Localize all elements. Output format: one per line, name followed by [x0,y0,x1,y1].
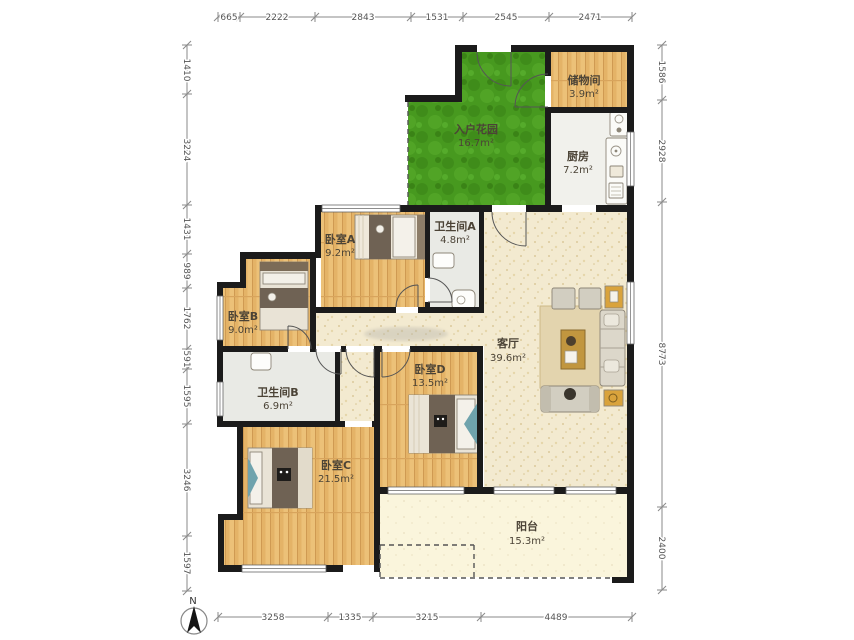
room-area-bedroom-b: 9.0m² [228,325,258,336]
armchair [552,288,575,309]
bed-d [409,395,478,453]
floor-plan: 665 2222 2843 1531 2545 2471 1410 3224 1… [0,0,854,640]
dim-right-3: 2400 [656,537,666,560]
window [627,282,634,344]
room-area-bath-a: 4.8m² [440,235,470,246]
north-arrow-icon [187,606,201,633]
bedroom-c-floor-left [224,518,243,565]
dim-bottom-0: 3258 [262,613,285,623]
balcony-floor [380,494,627,577]
dim-bottom-1: 1335 [339,613,362,623]
dim-bottom-3: 4489 [545,613,568,623]
room-area-bath-b: 6.9m² [263,401,293,412]
bed-c [248,448,312,508]
bed-b [260,262,308,330]
room-label-living: 客厅 [496,336,519,350]
room-area-balcony: 15.3m² [509,536,545,547]
window [217,296,223,340]
dim-left-5: 591 [181,350,191,367]
window [494,487,554,494]
room-area-living: 39.6m² [490,353,526,364]
floor-plan-page: 665 2222 2843 1531 2545 2471 1410 3224 1… [0,0,854,640]
window [217,382,223,416]
bath-b-fixtures [251,353,271,370]
room-area-bedroom-a: 9.2m² [325,248,355,259]
room-area-storage: 3.9m² [569,89,599,100]
dim-left-6: 1595 [181,385,191,408]
side-table-bottom [604,390,623,406]
dim-top-0: 665 [220,13,237,23]
dimension-chain-top: 665 2222 2843 1531 2545 2471 [214,12,636,23]
room-label-garden: 入户花园 [454,122,498,136]
dim-left-2: 1431 [181,218,191,241]
dim-right-2: 8773 [656,343,666,366]
dim-left-0: 1410 [181,59,191,82]
dim-left-1: 3224 [181,139,191,162]
room-label-balcony: 阳台 [516,519,538,533]
armchair [579,288,601,309]
living-room-set [540,286,625,412]
room-area-bedroom-c: 21.5m² [318,474,354,485]
window [627,132,634,186]
dim-right-0: 1586 [656,61,666,84]
dimension-chain-left: 1410 3224 1431 989 1762 591 1595 3246 15… [181,41,192,595]
dim-right-1: 2928 [656,140,666,163]
dim-top-5: 2471 [579,13,602,23]
room-label-bedroom-a: 卧室A [325,232,356,246]
dim-top-1: 2222 [266,13,289,23]
bed-a [355,215,425,259]
dim-left-7: 3246 [181,469,191,492]
room-label-kitchen: 厨房 [567,149,589,163]
dim-top-3: 1531 [426,13,449,23]
dim-left-8: 1597 [181,552,191,575]
room-label-bedroom-d: 卧室D [414,362,445,376]
window [388,487,464,494]
dim-left-3: 989 [181,262,191,279]
dim-top-4: 2545 [495,13,518,23]
corridor-floor [340,352,374,421]
room-area-kitchen: 7.2m² [563,165,593,176]
dim-bottom-2: 3215 [416,613,439,623]
north-compass: N [181,596,207,634]
window [566,487,616,494]
watermark [364,327,448,341]
room-label-bedroom-c: 卧室C [321,458,351,472]
window [242,565,326,572]
dim-left-4: 1762 [181,307,191,330]
dimension-chain-right: 1586 2928 8773 2400 [656,41,667,594]
room-label-bath-b: 卫生间B [257,385,298,399]
room-label-storage: 储物间 [568,73,601,87]
room-area-garden: 16.7m² [458,138,494,149]
room-label-bath-a: 卫生间A [434,219,476,233]
north-label: N [189,596,196,607]
dim-top-2: 2843 [352,13,375,23]
window [322,205,400,212]
room-area-bedroom-d: 13.5m² [412,378,448,389]
room-label-bedroom-b: 卧室B [228,309,258,323]
dimension-chain-bottom: 3258 1335 3215 4489 [214,612,636,623]
